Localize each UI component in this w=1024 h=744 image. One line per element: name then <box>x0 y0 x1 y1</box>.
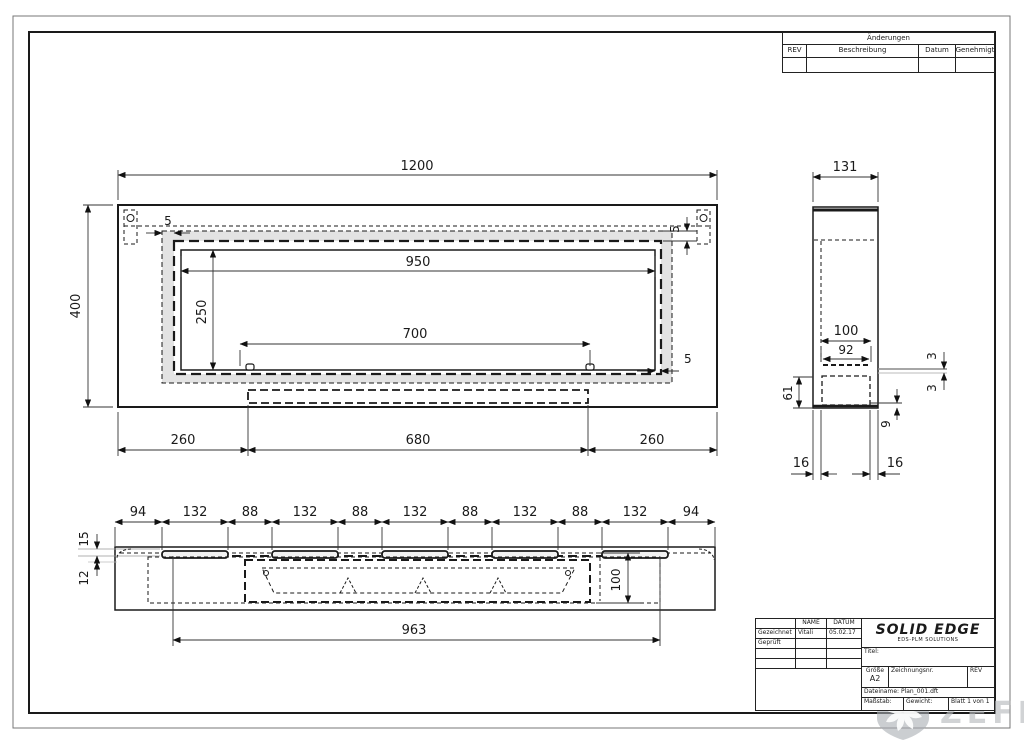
sig-empty-name <box>796 649 827 658</box>
dim-bottom-seg-4: 88 <box>352 505 369 520</box>
dim-bottom-lip-bottom: 12 <box>77 570 91 585</box>
size-cell: Größe A2 <box>862 667 889 687</box>
changes-empty-cell <box>919 58 956 72</box>
changes-col-approved: Genehmigt <box>956 45 994 57</box>
dim-front-burner-width: 700 <box>403 327 428 342</box>
title-block-signatures: NAME DATUM Gezeichnet Vitali 05.02.17 Ge… <box>756 619 862 710</box>
dim-front-overall-height: 400 <box>69 294 84 319</box>
title-cell: Titel: <box>862 648 994 667</box>
sig-corner-cell <box>756 619 796 628</box>
dim-bottom-seg-6: 88 <box>462 505 479 520</box>
sig-empty-label <box>756 659 796 668</box>
changes-col-date: Datum <box>919 45 956 57</box>
dim-bottom-seg-8: 88 <box>572 505 589 520</box>
sig-checked-label: Geprüft <box>756 639 796 648</box>
sig-empty-label <box>756 649 796 658</box>
changes-table: Änderungen REV Beschreibung Datum Genehm… <box>782 32 995 73</box>
drawing-number-cell: Zeichnungsnr. <box>889 667 968 687</box>
dim-side-foot-left: 16 <box>793 456 810 471</box>
sig-empty-date <box>827 649 861 658</box>
dim-side-flange-drop: 9 <box>879 420 893 428</box>
dim-bottom-seg-7: 132 <box>513 505 538 520</box>
dim-bottom-seg-2: 88 <box>242 505 259 520</box>
dim-bottom-seg-3: 132 <box>293 505 318 520</box>
dim-bottom-overall: 963 <box>402 623 427 638</box>
dim-side-foot-right: 16 <box>887 456 904 471</box>
sig-drawn-name: Vitali <box>796 629 827 638</box>
sig-name-header: NAME <box>796 619 827 628</box>
dim-bottom-seg-0: 94 <box>130 505 147 520</box>
sig-notes-area <box>756 669 861 710</box>
dim-side-slot-inner: 92 <box>838 343 853 357</box>
dim-front-gap-top-left: 5 <box>164 214 172 228</box>
sheet-number-cell: Blatt 1 von 1 <box>949 698 994 710</box>
brand-logo: SOLID EDGE <box>862 623 994 638</box>
filename-cell: Dateiname: Plan_001.dft <box>862 688 994 698</box>
dim-front-opening-width: 950 <box>406 255 431 270</box>
dim-bottom-seg-9: 132 <box>623 505 648 520</box>
dim-bottom-lip-top: 15 <box>77 531 91 546</box>
changes-col-description: Beschreibung <box>807 45 919 57</box>
dim-front-overall-width: 1200 <box>400 159 433 174</box>
drawing-sheet: 1200 400 950 250 700 5 5 5 260 680 260 <box>0 0 1024 744</box>
scale-cell: Maßstab: <box>862 698 904 710</box>
dim-front-bottom-left: 260 <box>171 433 196 448</box>
dim-front-bottom-right: 260 <box>640 433 665 448</box>
dim-side-overall-width: 131 <box>833 160 858 175</box>
sig-empty-name <box>796 659 827 668</box>
title-block: NAME DATUM Gezeichnet Vitali 05.02.17 Ge… <box>755 618 995 711</box>
sig-checked-date <box>827 639 861 648</box>
changes-title: Änderungen <box>783 33 994 44</box>
dim-front-gap-top-right: 5 <box>668 225 682 233</box>
sig-empty-date <box>827 659 861 668</box>
dim-side-plate-top: 3 <box>925 352 939 360</box>
sig-checked-name <box>796 639 827 648</box>
sig-date-header: DATUM <box>827 619 861 628</box>
changes-col-rev: REV <box>783 45 807 57</box>
title-block-info: SOLID EDGE EDS-PLM SOLUTIONS Titel: Größ… <box>862 619 994 710</box>
sig-drawn-label: Gezeichnet <box>756 629 796 638</box>
dim-front-bottom-center: 680 <box>406 433 431 448</box>
dim-front-gap-bottom-right: 5 <box>684 352 692 366</box>
side-view <box>813 207 947 408</box>
dim-bottom-seg-10: 94 <box>683 505 700 520</box>
changes-empty-cell <box>956 58 994 72</box>
brand-cell: SOLID EDGE EDS-PLM SOLUTIONS <box>862 619 994 648</box>
size-value: A2 <box>864 675 886 684</box>
sig-drawn-date: 05.02.17 <box>827 629 861 638</box>
dim-side-plate-bottom: 3 <box>925 384 939 392</box>
changes-empty-cell <box>783 58 807 72</box>
dim-front-opening-height: 250 <box>195 300 210 325</box>
dim-bottom-slot-height: 100 <box>609 569 623 592</box>
changes-empty-cell <box>807 58 919 72</box>
dim-side-box-depth: 61 <box>781 385 795 400</box>
weight-cell: Gewicht: <box>904 698 949 710</box>
dim-bottom-seg-5: 132 <box>403 505 428 520</box>
brand-subtitle: EDS-PLM SOLUTIONS <box>862 638 994 644</box>
dim-bottom-seg-1: 132 <box>183 505 208 520</box>
rev-cell: REV <box>968 667 994 687</box>
dim-side-slot-outer: 100 <box>834 324 859 339</box>
